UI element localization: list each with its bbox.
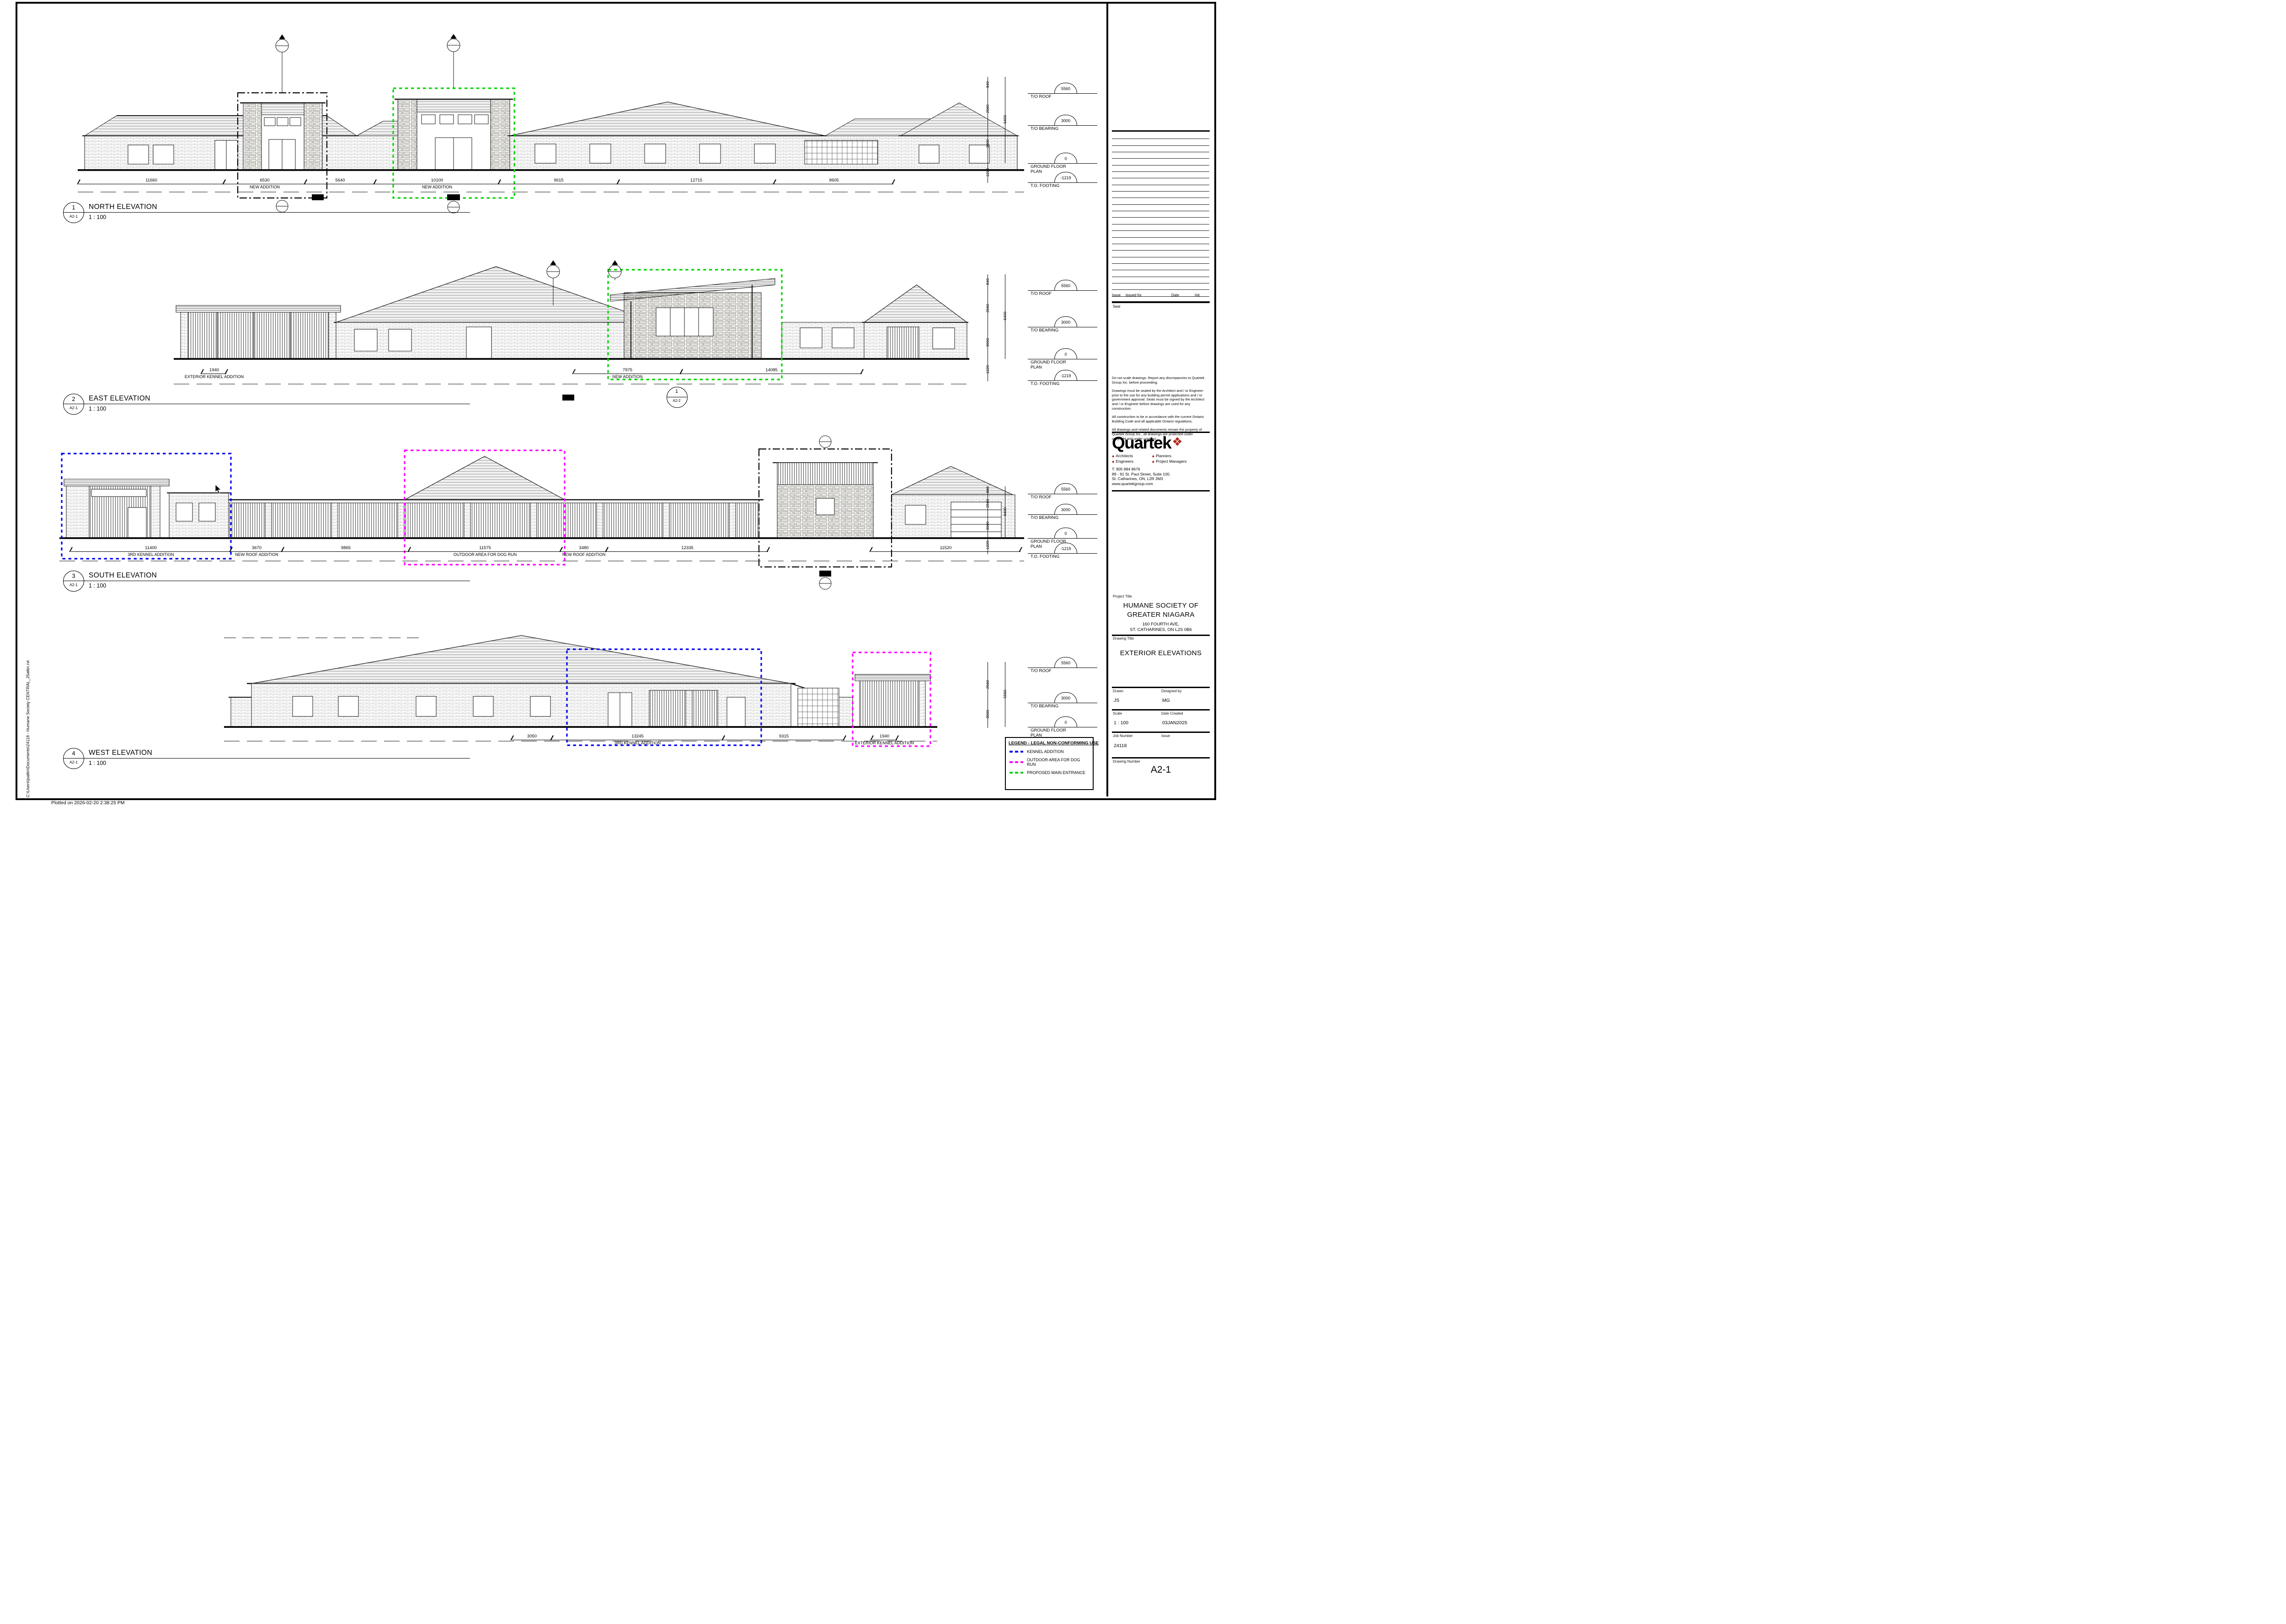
dimension-value: 9315: [723, 734, 844, 739]
dimension-value: 9615: [499, 178, 618, 183]
dimension-segment: 1940EXTERIOR KENNEL ADDITION: [202, 368, 226, 381]
issue-row: [1112, 224, 1209, 231]
dimension-segment: 12715: [618, 178, 774, 192]
level-label: T/O ROOF: [1031, 495, 1076, 500]
issue-row: [1112, 198, 1209, 204]
scale-value: 1 : 100: [1114, 720, 1128, 726]
north-elevation-label: 1 A2-1 NORTH ELEVATION 1 : 100: [63, 202, 502, 225]
project-title-label: Project Title: [1113, 594, 1132, 598]
legend-swatch: [1009, 772, 1023, 774]
issue-row: [1112, 283, 1209, 290]
elevation-title: NORTH ELEVATION: [89, 203, 157, 211]
project-address2: ST. CATHARINES, ON L2S 0B6: [1112, 627, 1210, 632]
vertical-dim-value: 3000: [985, 516, 990, 536]
issue-row: [1112, 178, 1209, 185]
dimension-note: OUTDOOR AREA FOR DOG RUN: [454, 552, 517, 557]
dimension-value: 12335: [607, 545, 768, 550]
legend-swatch: [1009, 761, 1023, 763]
level-label: T/O ROOF: [1031, 669, 1076, 674]
plotted-timestamp: Plotted on 2026-02-20 2:38:25 PM: [51, 800, 125, 806]
detail-sheet: A2-1: [64, 214, 84, 219]
dimension-value: 3480: [561, 545, 607, 550]
titleblock-rule: [1112, 709, 1210, 710]
issue-label: Issue: [1161, 734, 1170, 738]
dimension-value: 13245: [552, 734, 723, 739]
section-marker: 1 A2-2: [667, 387, 687, 407]
elevation-scale: 1 : 100: [89, 214, 106, 220]
legend-item: OUTDOOR AREA FOR DOG RUN: [1009, 758, 1089, 767]
vertical-dim-value: 3000: [985, 332, 990, 353]
issue-row: [1112, 257, 1209, 264]
titleblock-rule: [1112, 301, 1210, 303]
detail-sheet: A2-1: [64, 760, 84, 764]
detail-bubble: 4 A2-1: [63, 748, 84, 769]
job-number-value: 24118: [1114, 743, 1127, 748]
diamond-bullet-icon: ◆: [1112, 460, 1114, 464]
issue-row: [1112, 172, 1209, 178]
dimension-segment: 14085: [681, 368, 862, 381]
firm-discipline: ◆Planners: [1152, 454, 1199, 459]
dimension-value: 3670: [231, 545, 283, 550]
west-elevation-drawing: [224, 629, 937, 750]
legend-swatch: [1009, 751, 1023, 753]
dimension-value: 9865: [283, 545, 409, 550]
firm-address2: St. Catharines, ON, L2R 3M3: [1112, 476, 1209, 481]
vertical-dim-value: 2560: [985, 493, 990, 513]
vertical-dim-value: 1220: [985, 535, 990, 555]
elevation-scale: 1 : 100: [89, 406, 106, 412]
date-created-label: Date Created: [1161, 711, 1183, 716]
legend-label: KENNEL ADDITION: [1027, 749, 1064, 754]
vertical-dim-value: 5560: [1003, 684, 1007, 704]
dimension-segment: 11660: [79, 178, 224, 192]
titleblock-rule: [1112, 635, 1210, 636]
dimension-note: NEW ADDITION: [250, 185, 280, 189]
issue-row: [1112, 159, 1209, 165]
drawn-label: Drawn: [1113, 689, 1123, 693]
level-label: T/O BEARING: [1031, 127, 1076, 132]
dimension-segment: 9865: [283, 545, 409, 559]
dimension-note: EXTERIOR KENNEL ADDITION: [185, 374, 244, 379]
south-elevation-drawing: [59, 434, 1024, 592]
east-elevation-label: 2 A2-1 EAST ELEVATION 1 : 100: [63, 394, 502, 417]
mouse-cursor: [215, 485, 224, 495]
drawing-title: EXTERIOR ELEVATIONS: [1112, 649, 1210, 657]
vertical-dim-value: 6400: [1003, 306, 1007, 326]
dimension-segment: 3670NEW ROOF ADDITION: [231, 545, 283, 559]
titleblock-rule: [1112, 687, 1210, 688]
vertical-dim-value: 2560: [985, 298, 990, 318]
level-label: T/O ROOF: [1031, 95, 1076, 100]
level-label: T.O. FOOTING: [1031, 184, 1076, 189]
dimension-value: 12715: [618, 178, 774, 183]
dimension-value: 6530: [224, 178, 305, 183]
dimension-value: 3050: [512, 734, 552, 739]
dimension-value: 9605: [774, 178, 893, 183]
marker-sheet: A2-2: [667, 399, 687, 403]
diamond-bullet-icon: ◆: [1152, 455, 1154, 458]
legend-title: LEGEND - LEGAL NON-CONFORMING USE: [1009, 741, 1090, 746]
marker-number: 1: [667, 389, 687, 394]
dimension-value: 11660: [79, 178, 224, 183]
note-paragraph: All construction to be in accordance wit…: [1112, 415, 1208, 423]
issue-row: [1112, 139, 1209, 145]
dimension-note: 3RD KENNEL ADDITION: [614, 741, 661, 745]
scale-label: Scale: [1113, 711, 1122, 716]
detail-bubble: 3 A2-1: [63, 571, 84, 592]
detail-number: 3: [64, 572, 84, 579]
firm-discipline: ◆Project Managers: [1152, 459, 1199, 465]
drawing-sheet: 1 A2-1 NORTH ELEVATION 1 : 100 2 A2-1 EA…: [0, 0, 1218, 812]
issue-row: [1112, 218, 1209, 224]
dimension-note: EXTERIOR KENNEL ADDITION: [855, 741, 914, 745]
firm-logo-mark: ❖: [1172, 435, 1182, 449]
dimension-value: 11400: [71, 545, 231, 550]
north-dimensions: 116606530NEW ADDITION564010100NEW ADDITI…: [79, 178, 893, 192]
dimension-segment: 11520: [871, 545, 1020, 559]
dimension-value: 7975: [574, 368, 681, 373]
dimension-value: 14085: [681, 368, 862, 373]
legend-item: KENNEL ADDITION: [1009, 749, 1089, 754]
titleblock-rule: [1112, 130, 1210, 132]
issue-row: [1112, 152, 1209, 159]
vertical-dim-value: 2560: [985, 99, 990, 119]
level-label: T/O ROOF: [1031, 292, 1076, 297]
dimension-segment: 1940EXTERIOR KENNEL ADDITION: [872, 734, 897, 748]
elevation-title: WEST ELEVATION: [89, 749, 152, 757]
detail-sheet: A2-1: [64, 582, 84, 587]
project-name-line2: GREATER NIAGARA: [1112, 611, 1210, 619]
level-label: T.O. FOOTING: [1031, 555, 1076, 560]
dimension-value: 1940: [202, 368, 226, 373]
label-line: [63, 758, 470, 759]
firm-disciplines: ◆Architects◆Engineers◆Planners◆Project M…: [1112, 454, 1199, 465]
issue-row: [1112, 192, 1209, 198]
dimension-value: 11575: [409, 545, 561, 550]
dimension-segment: 3480NEW ROOF ADDITION: [561, 545, 607, 559]
vertical-dim-value: 2560: [985, 674, 990, 694]
dimension-note: NEW ADDITION: [422, 185, 452, 189]
titleblock-rule: [1112, 432, 1210, 433]
issue-row: [1112, 277, 1209, 283]
dimension-segment: 9615: [499, 178, 618, 192]
seal-label: Seal: [1113, 304, 1120, 309]
issue-table: [1112, 133, 1209, 303]
dimension-segment: 5640: [305, 178, 375, 192]
dimension-note: 3RD KENNEL ADDITION: [128, 552, 174, 557]
level-label: T/O BEARING: [1031, 704, 1076, 709]
dimension-segment: 11575OUTDOOR AREA FOR DOG RUN: [409, 545, 561, 559]
west-elevation-label: 4 A2-1 WEST ELEVATION 1 : 100: [63, 748, 502, 771]
dimension-segment: 9605: [774, 178, 893, 192]
issue-row: [1112, 238, 1209, 244]
elevation-scale: 1 : 100: [89, 582, 106, 589]
dimension-segment: 12335: [607, 545, 768, 559]
titleblock-divider: [1106, 2, 1108, 796]
vertical-dim-value: 3000: [985, 134, 990, 154]
issue-header: Issue: [1112, 293, 1126, 297]
dimension-segment: 114003RD KENNEL ADDITION: [71, 545, 231, 559]
firm-address1: 89 - 91 St. Paul Street, Suite 100,: [1112, 472, 1209, 477]
firm-phone: T: 905 984 8676: [1112, 467, 1209, 472]
legend-item: PROPOSED MAIN ENTRANCE: [1009, 770, 1089, 775]
firm-logo: Quartek❖ ◆Architects◆Engineers◆Planners◆…: [1112, 433, 1209, 486]
vertical-dim-value: 6400: [1003, 109, 1007, 129]
vertical-dim-value: 1220: [985, 162, 990, 182]
note-paragraph: Do not scale drawings. Report any discre…: [1112, 376, 1208, 385]
vertical-dim-value: 6400: [1003, 502, 1007, 522]
label-line: [63, 404, 470, 404]
note-paragraph: Drawings must be sealed by the Architect…: [1112, 389, 1208, 411]
label-line: [63, 212, 470, 213]
east-dimensions: 1940EXTERIOR KENNEL ADDITION7975NEW ADDI…: [174, 368, 862, 381]
issue-table-headers: IssueIssued forDateInit.: [1112, 293, 1209, 297]
issue-row: [1112, 166, 1209, 172]
dimension-segment: 6530NEW ADDITION: [224, 178, 305, 192]
detail-bubble: 1 A2-1: [63, 202, 84, 223]
dimension-value: 5640: [305, 178, 375, 183]
project-name-line1: HUMANE SOCIETY OF: [1112, 602, 1210, 609]
job-number-label: Job Number: [1113, 734, 1133, 738]
issue-header: Init.: [1195, 293, 1209, 297]
drawing-title-label: Drawing Title: [1113, 636, 1134, 641]
firm-name: Quartek: [1112, 433, 1171, 453]
legend-items: KENNEL ADDITIONOUTDOOR AREA FOR DOG RUNP…: [1006, 749, 1093, 775]
issue-row: [1112, 270, 1209, 277]
diamond-bullet-icon: ◆: [1112, 455, 1114, 458]
south-elevation-label: 3 A2-1 SOUTH ELEVATION 1 : 100: [63, 571, 502, 593]
issue-row: [1112, 264, 1209, 270]
designed-value: MG: [1162, 698, 1170, 703]
elevation-scale: 1 : 100: [89, 760, 106, 766]
project-address1: 160 FOURTH AVE,: [1112, 622, 1210, 627]
firm-discipline: ◆Architects: [1112, 454, 1146, 459]
dimension-segment: 7975NEW ADDITION: [574, 368, 681, 381]
detail-bubble: 2 A2-1: [63, 394, 84, 415]
vertical-dim-value: 1220: [985, 359, 990, 379]
date-created-value: 03JAN2025: [1162, 720, 1187, 726]
dimension-segment: 10100NEW ADDITION: [375, 178, 499, 192]
dimension-segment: 3050: [512, 734, 552, 748]
level-label: T.O. FOOTING: [1031, 382, 1076, 387]
level-label: T/O BEARING: [1031, 516, 1076, 521]
detail-number: 2: [64, 395, 84, 402]
dimension-value: 1940: [872, 734, 897, 739]
designed-label: Designed by: [1161, 689, 1181, 693]
east-elevation-drawing: [174, 258, 969, 409]
titleblock-rule: [1112, 757, 1210, 759]
titleblock-rule: [1112, 732, 1210, 733]
elevation-title: EAST ELEVATION: [89, 395, 150, 403]
south-dimensions: 114003RD KENNEL ADDITION3670NEW ROOF ADD…: [71, 545, 1020, 559]
dimension-segment: 132453RD KENNEL ADDITION: [552, 734, 723, 748]
firm-discipline: ◆Engineers: [1112, 459, 1146, 465]
vertical-dim-value: 3000: [985, 704, 990, 724]
level-label: GROUND FLOOR PLAN: [1031, 728, 1076, 738]
titleblock-rule: [1112, 490, 1210, 491]
dimension-note: NEW ADDITION: [612, 374, 642, 379]
legend-label: OUTDOOR AREA FOR DOG RUN: [1027, 758, 1089, 767]
label-line: [63, 581, 470, 581]
issue-row: [1112, 231, 1209, 237]
issue-row: [1112, 251, 1209, 257]
dimension-value: 10100: [375, 178, 499, 183]
drawing-number: A2-1: [1112, 764, 1210, 775]
issue-header: Date: [1171, 293, 1195, 297]
dimension-note: NEW ROOF ADDITION: [562, 552, 606, 557]
issue-row: [1112, 244, 1209, 251]
firm-website[interactable]: www.quartekgroup.com: [1112, 481, 1209, 486]
dimension-value: 11520: [871, 545, 1020, 550]
firm-contact: T: 905 984 8676 89 - 91 St. Paul Street,…: [1112, 467, 1209, 486]
dimension-note: NEW ROOF ADDITION: [235, 552, 278, 557]
drawn-value: JS: [1114, 698, 1119, 703]
issue-row: [1112, 185, 1209, 192]
dimension-segment: 9315: [723, 734, 844, 748]
detail-sheet: A2-1: [64, 406, 84, 410]
diamond-bullet-icon: ◆: [1152, 460, 1154, 464]
issue-header: Issued for: [1126, 293, 1171, 297]
level-label: T/O BEARING: [1031, 328, 1076, 333]
vertical-dim-value: 840: [985, 272, 990, 292]
level-label: GROUND FLOOR PLAN: [1031, 360, 1076, 370]
issue-row: [1112, 146, 1209, 152]
issue-row: [1112, 133, 1209, 139]
detail-number: 1: [64, 204, 84, 211]
elevation-title: SOUTH ELEVATION: [89, 572, 157, 580]
legend-label: PROPOSED MAIN ENTRANCE: [1027, 770, 1085, 775]
legend-box: LEGEND - LEGAL NON-CONFORMING USE KENNEL…: [1005, 737, 1094, 790]
detail-number: 4: [64, 750, 84, 757]
west-dimensions: 3050132453RD KENNEL ADDITION93151940EXTE…: [512, 734, 897, 748]
issue-row: [1112, 205, 1209, 211]
file-path: C:\Users\jsattin\Documents\24118 - Human…: [26, 661, 30, 797]
vertical-dim-value: 840: [985, 75, 990, 95]
issue-row: [1112, 211, 1209, 218]
drawing-number-label: Drawing Number: [1113, 759, 1140, 764]
